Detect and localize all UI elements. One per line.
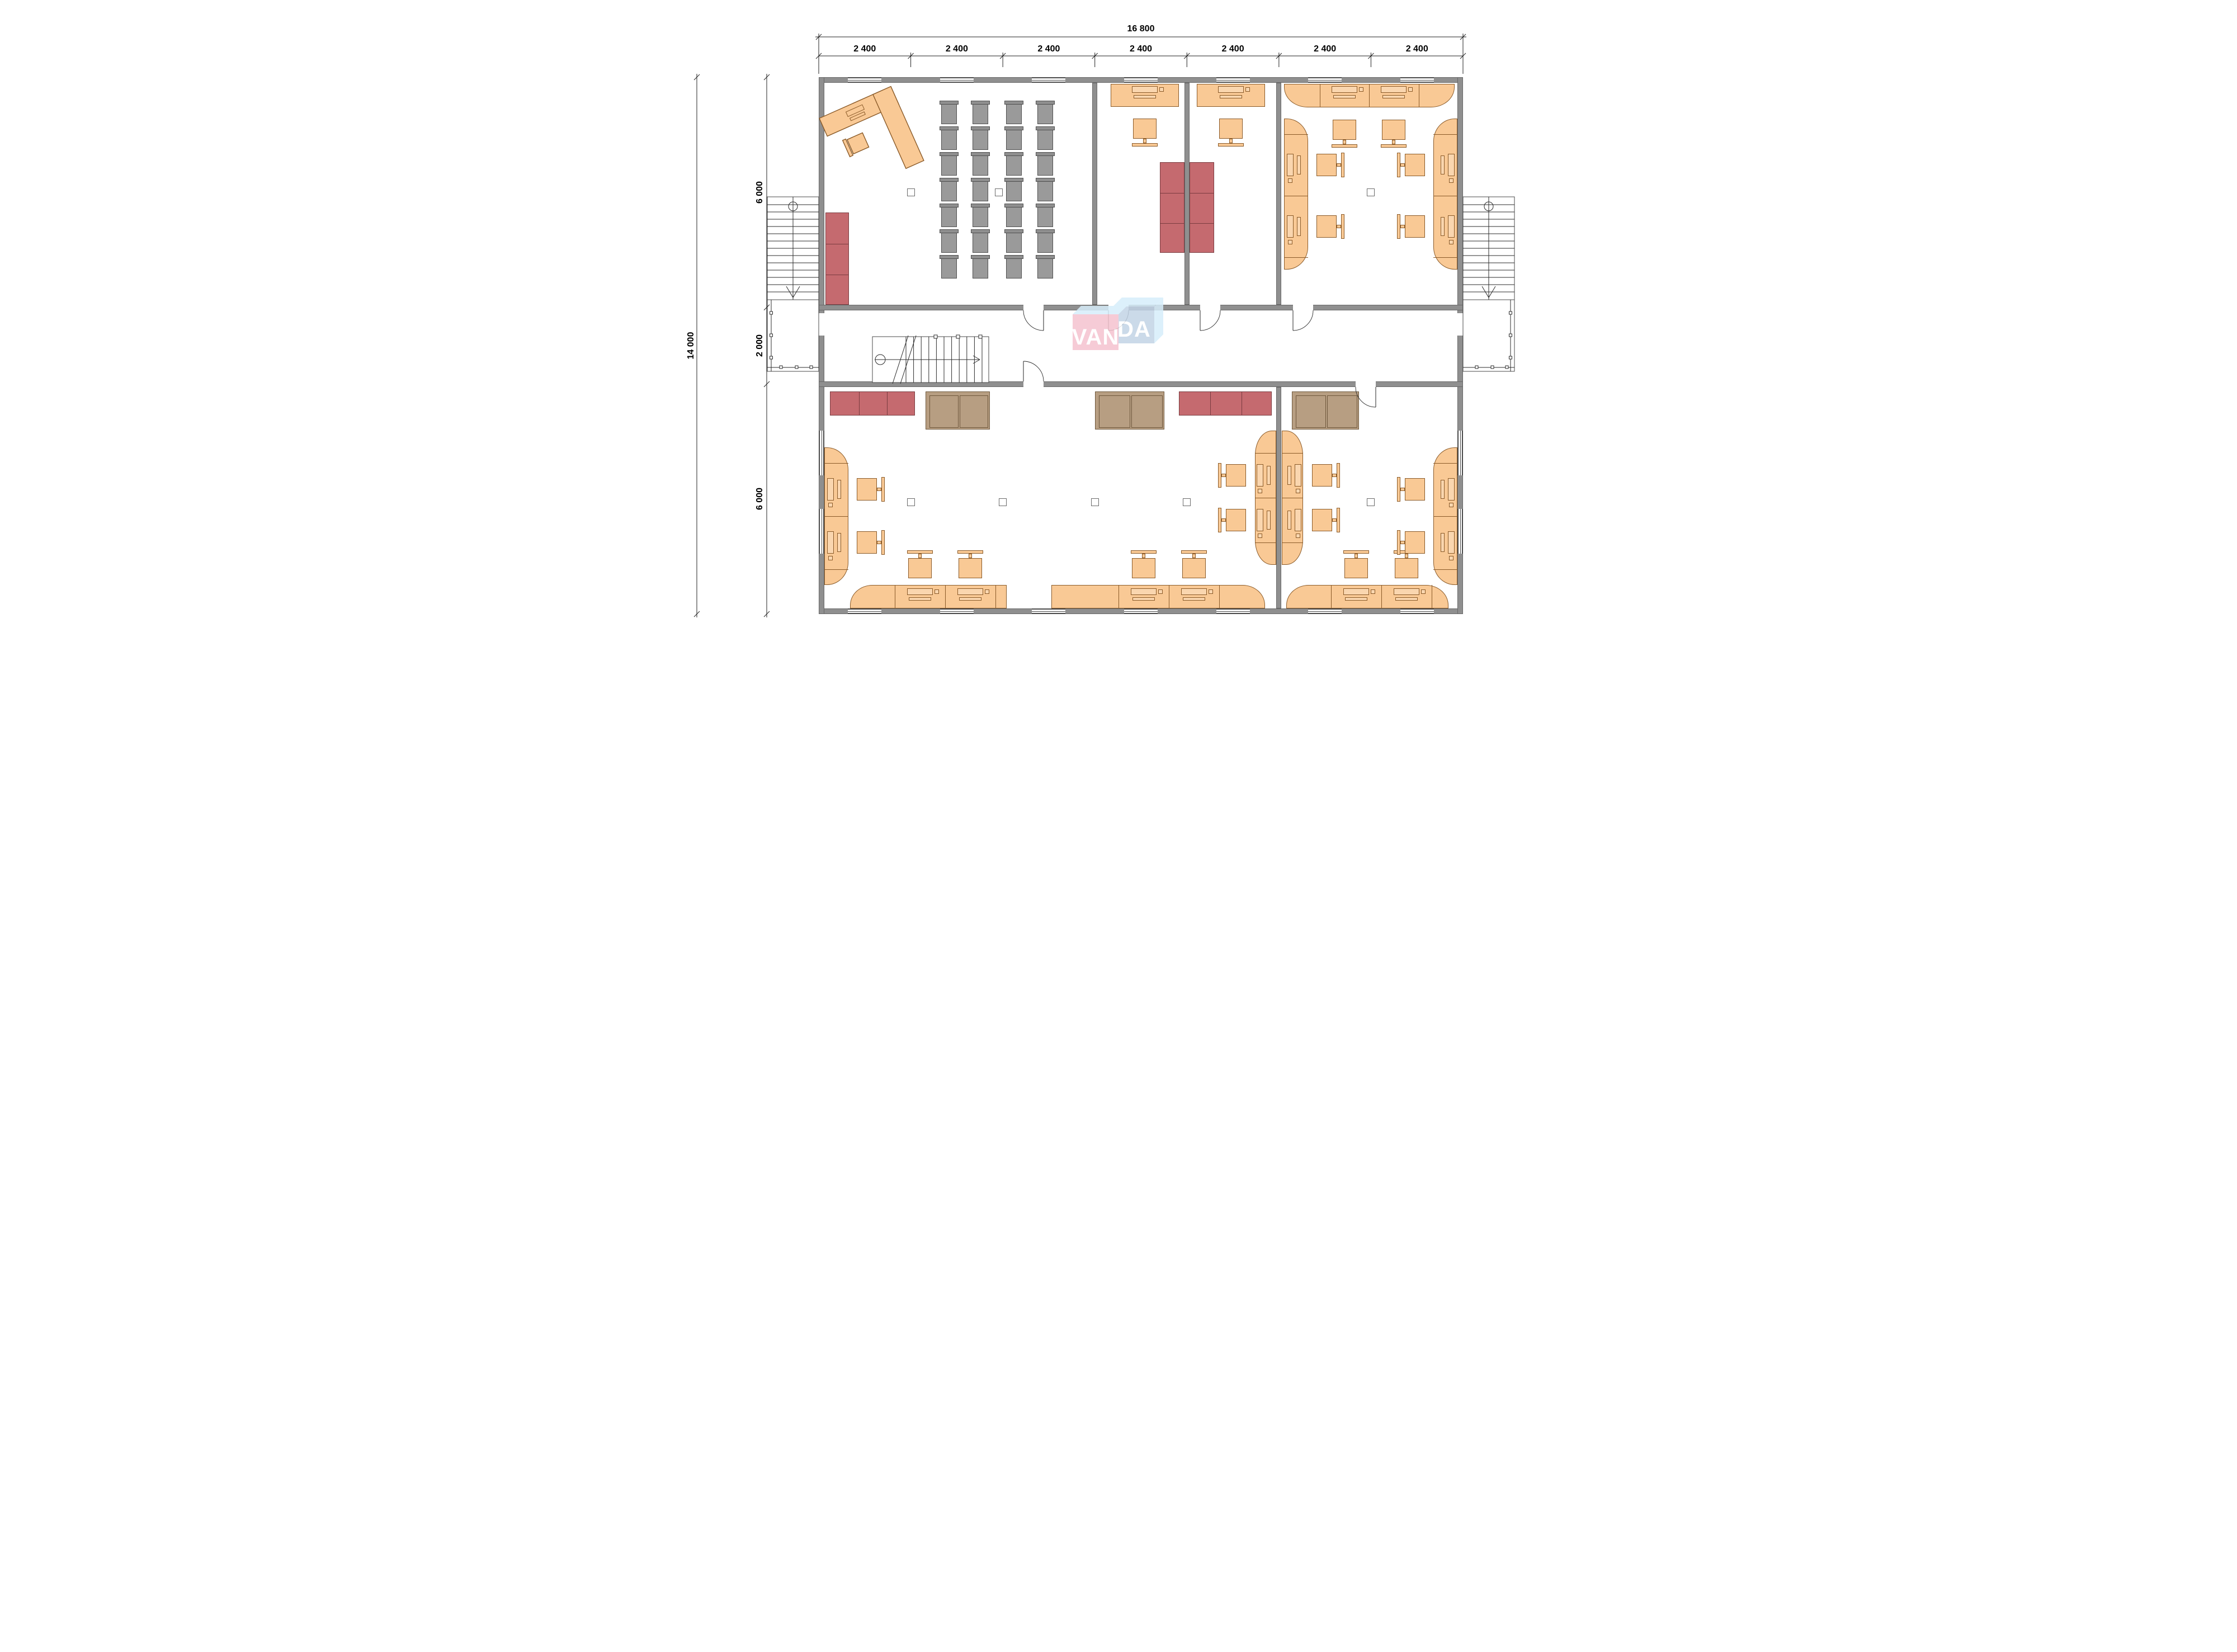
exterior-staircase bbox=[767, 197, 819, 300]
logo-text-da: DA bbox=[1117, 317, 1151, 342]
porch-outline bbox=[767, 300, 819, 371]
logo-text-van: VAN bbox=[1072, 325, 1119, 350]
door-swing-arc bbox=[1023, 361, 1044, 381]
door-swing-arc bbox=[1356, 387, 1376, 407]
railing-post bbox=[1509, 356, 1512, 359]
dimension-segment-label: 2 400 bbox=[1406, 44, 1428, 54]
dimension-segment-label: 6 000 bbox=[755, 488, 764, 510]
railing-post bbox=[810, 366, 813, 369]
dimension-label-width-total: 16 800 bbox=[1127, 24, 1155, 34]
porch-outline bbox=[1463, 300, 1514, 371]
entrance-porch bbox=[1463, 300, 1514, 371]
dimension-segment-label: 2 400 bbox=[1037, 44, 1060, 54]
dimension-segment-label: 2 400 bbox=[1314, 44, 1336, 54]
railing-post bbox=[934, 335, 937, 338]
railing-post bbox=[979, 335, 982, 338]
dimension-segment-label: 2 400 bbox=[1222, 44, 1244, 54]
railing-post bbox=[1509, 334, 1512, 337]
railing-post bbox=[1509, 311, 1512, 314]
railing-post bbox=[780, 366, 782, 369]
dimension-segment-label: 6 000 bbox=[755, 181, 764, 204]
door-swing-arc bbox=[1023, 310, 1044, 331]
railing-post bbox=[795, 366, 798, 369]
vanda-logo-graphic: VAN DA bbox=[1063, 295, 1169, 358]
railing-post bbox=[1475, 366, 1478, 369]
dimension-segment-label: 2 000 bbox=[755, 334, 764, 357]
railing-post bbox=[956, 335, 960, 338]
door-swing-arc bbox=[1200, 310, 1220, 331]
railing-post bbox=[1506, 366, 1508, 369]
dimension-label-height-total: 14 000 bbox=[686, 332, 696, 359]
reception-desk bbox=[819, 87, 924, 192]
railing-post bbox=[1491, 366, 1494, 369]
floor-plan: 16 8002 4002 4002 4002 4002 4002 4002 40… bbox=[671, 0, 1566, 661]
dimension-segment-label: 2 400 bbox=[946, 44, 968, 54]
logo-pink-top-face bbox=[1073, 306, 1127, 314]
dimension-segment-label: 2 400 bbox=[853, 44, 876, 54]
railing-post bbox=[770, 311, 773, 314]
entrance-porch bbox=[767, 300, 819, 371]
railing-post bbox=[770, 356, 773, 359]
vanda-logo: VAN DA bbox=[1063, 295, 1169, 358]
door-swing-arc bbox=[1293, 310, 1313, 331]
reception-desk-return bbox=[873, 87, 924, 169]
interior-staircase bbox=[872, 335, 989, 384]
dimension-segment-label: 2 400 bbox=[1130, 44, 1152, 54]
railing-post bbox=[770, 334, 773, 337]
exterior-staircase bbox=[1463, 197, 1514, 300]
